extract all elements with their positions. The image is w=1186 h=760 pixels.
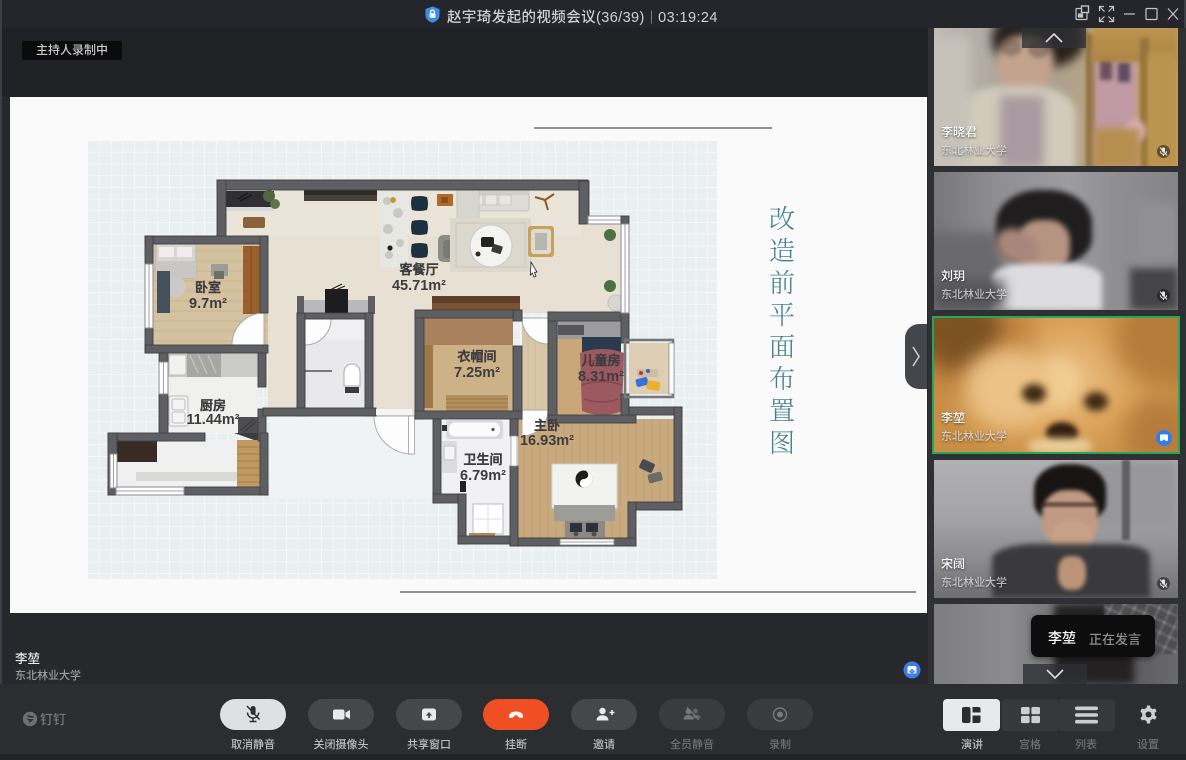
svg-text:客餐厅: 客餐厅 <box>398 259 438 278</box>
svg-text:9.7m²: 9.7m² <box>189 296 227 312</box>
svg-text:衣帽间: 衣帽间 <box>456 346 496 365</box>
svg-text:卧室: 卧室 <box>195 277 221 296</box>
svg-text:主卧: 主卧 <box>534 415 560 434</box>
svg-text:卫生间: 卫生间 <box>463 449 502 468</box>
svg-text:45.71m²: 45.71m² <box>392 278 446 294</box>
svg-text:钉钉: 钉钉 <box>40 710 66 728</box>
svg-text:7.25m²: 7.25m² <box>454 365 500 381</box>
svg-text:6.79m²: 6.79m² <box>460 468 506 484</box>
svg-text:11.44m²: 11.44m² <box>186 412 239 428</box>
svg-text:儿童房: 儿童房 <box>580 350 620 369</box>
svg-text:16.93m²: 16.93m² <box>520 433 574 449</box>
svg-text:8.31m²: 8.31m² <box>578 369 624 385</box>
